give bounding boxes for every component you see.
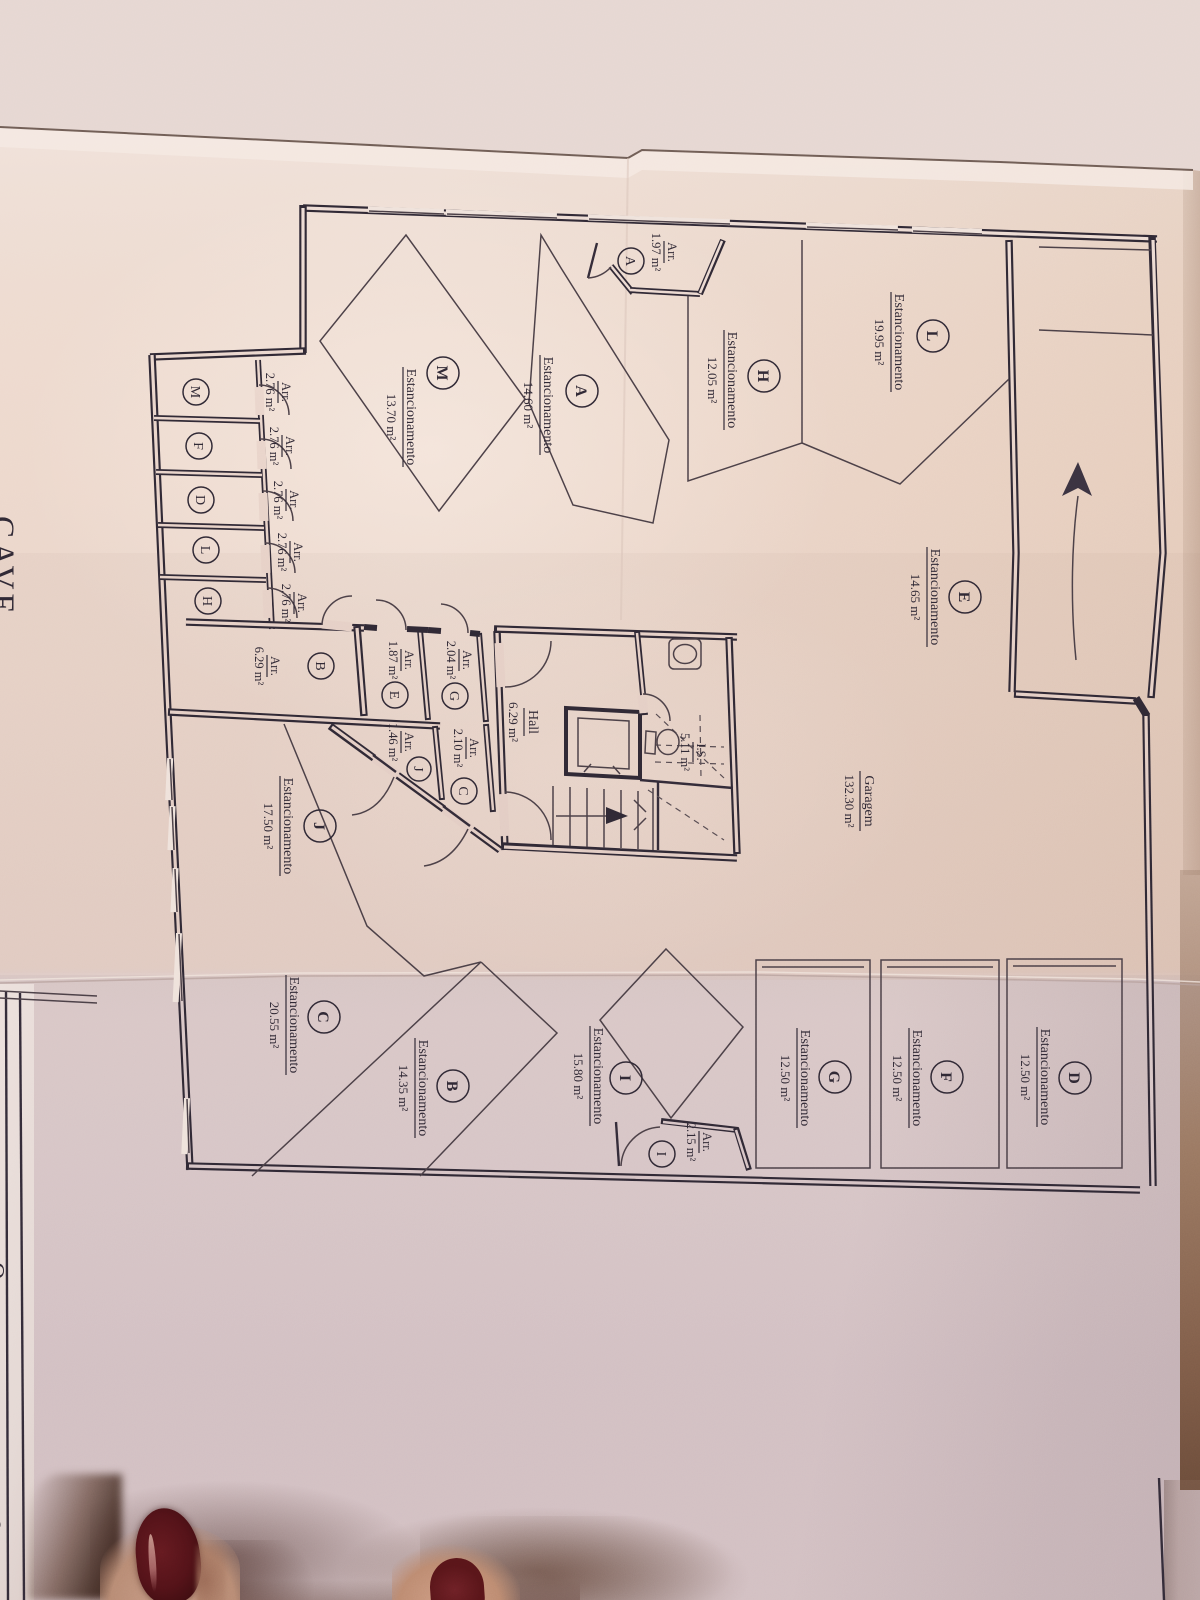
- svg-text:L: L: [923, 331, 940, 342]
- svg-text:2.76 m²: 2.76 m²: [279, 584, 293, 623]
- svg-text:B: B: [443, 1081, 460, 1092]
- svg-text:Arr.: Arr.: [291, 542, 305, 562]
- svg-text:Estancionamento: Estancionamento: [1037, 1029, 1052, 1125]
- svg-text:G: G: [825, 1071, 842, 1084]
- svg-text:M: M: [433, 365, 450, 380]
- svg-text:Arr.: Arr.: [700, 1132, 714, 1152]
- svg-text:I: I: [616, 1075, 633, 1081]
- svg-text:12.50 m²: 12.50 m²: [1018, 1054, 1033, 1101]
- svg-text:19.95 m²: 19.95 m²: [872, 319, 887, 366]
- svg-text:12.50 m²: 12.50 m²: [890, 1055, 905, 1102]
- svg-text:12.50 m²: 12.50 m²: [778, 1055, 793, 1102]
- svg-text:Arr.: Arr.: [402, 650, 416, 670]
- svg-text:2.15 m²: 2.15 m²: [684, 1123, 698, 1162]
- svg-text:2.76 m²: 2.76 m²: [271, 481, 285, 520]
- svg-text:H: H: [754, 370, 771, 383]
- svg-text:J: J: [410, 766, 425, 772]
- svg-text:Arr.: Arr.: [460, 650, 474, 670]
- svg-text:Arr.: Arr.: [665, 242, 679, 262]
- svg-text:Arr.: Arr.: [287, 490, 301, 510]
- svg-text:C: C: [455, 786, 470, 795]
- svg-text:A: A: [572, 385, 589, 397]
- svg-text:Estancionamento: Estancionamento: [797, 1030, 812, 1126]
- svg-text:2.76 m²: 2.76 m²: [267, 427, 281, 466]
- svg-text:Estancionamento: Estancionamento: [280, 778, 295, 874]
- svg-text:Hall: Hall: [525, 710, 540, 734]
- svg-text:I.S.: I.S.: [694, 743, 708, 760]
- svg-text:Arr.: Arr.: [467, 738, 481, 758]
- svg-text:Arr.: Arr.: [279, 382, 293, 402]
- svg-text:14.60 m²: 14.60 m²: [521, 382, 536, 429]
- svg-text:Estancionamento: Estancionamento: [403, 369, 418, 465]
- svg-text:Estancionamento: Estancionamento: [927, 549, 942, 645]
- svg-text:F: F: [937, 1072, 954, 1082]
- svg-text:15.80 m²: 15.80 m²: [571, 1053, 586, 1100]
- svg-text:Arr.: Arr.: [402, 732, 416, 752]
- svg-text:Estancionamento: Estancionamento: [891, 294, 906, 390]
- svg-text:Estancionamento: Estancionamento: [286, 977, 301, 1073]
- svg-text:17.50 m²: 17.50 m²: [261, 803, 276, 850]
- svg-text:12.05 m²: 12.05 m²: [705, 357, 720, 404]
- svg-text:2.76 m²: 2.76 m²: [275, 533, 289, 572]
- svg-text:A: A: [622, 256, 637, 267]
- svg-text:N1: N1: [0, 1420, 5, 1446]
- svg-text:D: D: [1065, 1072, 1082, 1084]
- svg-text:5.11 m²: 5.11 m²: [678, 733, 692, 771]
- svg-text:Estancionamento: Estancionamento: [540, 357, 555, 453]
- svg-text:14.65 m²: 14.65 m²: [908, 574, 923, 621]
- svg-text:1.46 m²: 1.46 m²: [386, 723, 400, 762]
- svg-text:14.35 m²: 14.35 m²: [396, 1065, 411, 1112]
- svg-text:F: F: [190, 442, 205, 450]
- svg-text:Arr.: Arr.: [295, 593, 309, 613]
- svg-text:1.97 m²: 1.97 m²: [649, 233, 663, 272]
- svg-text:E: E: [386, 691, 401, 700]
- svg-text:CAVE: CAVE: [0, 516, 20, 618]
- svg-text:2.10 m²: 2.10 m²: [451, 729, 465, 768]
- svg-text:Estancionamento: Estancionamento: [415, 1040, 430, 1136]
- svg-text:6.29 m²: 6.29 m²: [252, 647, 266, 686]
- svg-text:Arr.: Arr.: [283, 436, 297, 456]
- svg-text:Garagem: Garagem: [861, 775, 876, 826]
- svg-text:Arr.: Arr.: [268, 656, 282, 676]
- svg-text:O: O: [0, 1262, 8, 1279]
- svg-text:2.04 m²: 2.04 m²: [444, 641, 458, 680]
- svg-text:-2: -2: [0, 1516, 3, 1529]
- svg-text:Estancionamento: Estancionamento: [590, 1028, 605, 1124]
- svg-text:D: D: [192, 495, 207, 505]
- svg-text:H: H: [199, 596, 214, 606]
- svg-text:6.29 m²: 6.29 m²: [506, 702, 521, 742]
- svg-text:E: E: [955, 592, 972, 603]
- svg-text:C: C: [314, 1011, 331, 1023]
- svg-text:I: I: [653, 1152, 668, 1157]
- svg-text:J: J: [310, 822, 327, 830]
- svg-text:132.30 m²: 132.30 m²: [842, 774, 857, 827]
- svg-text:Estancionamento: Estancionamento: [909, 1030, 924, 1126]
- svg-text:Estancionamento: Estancionamento: [724, 332, 739, 428]
- svg-text:20.55 m²: 20.55 m²: [267, 1002, 282, 1049]
- svg-text:M: M: [187, 386, 202, 399]
- svg-text:13.70 m²: 13.70 m²: [384, 394, 399, 441]
- svg-text:G: G: [446, 691, 461, 701]
- svg-text:2.76 m²: 2.76 m²: [263, 373, 277, 412]
- svg-text:B: B: [312, 661, 327, 670]
- svg-text:1.87 m²: 1.87 m²: [386, 641, 400, 680]
- svg-text:L: L: [197, 546, 212, 555]
